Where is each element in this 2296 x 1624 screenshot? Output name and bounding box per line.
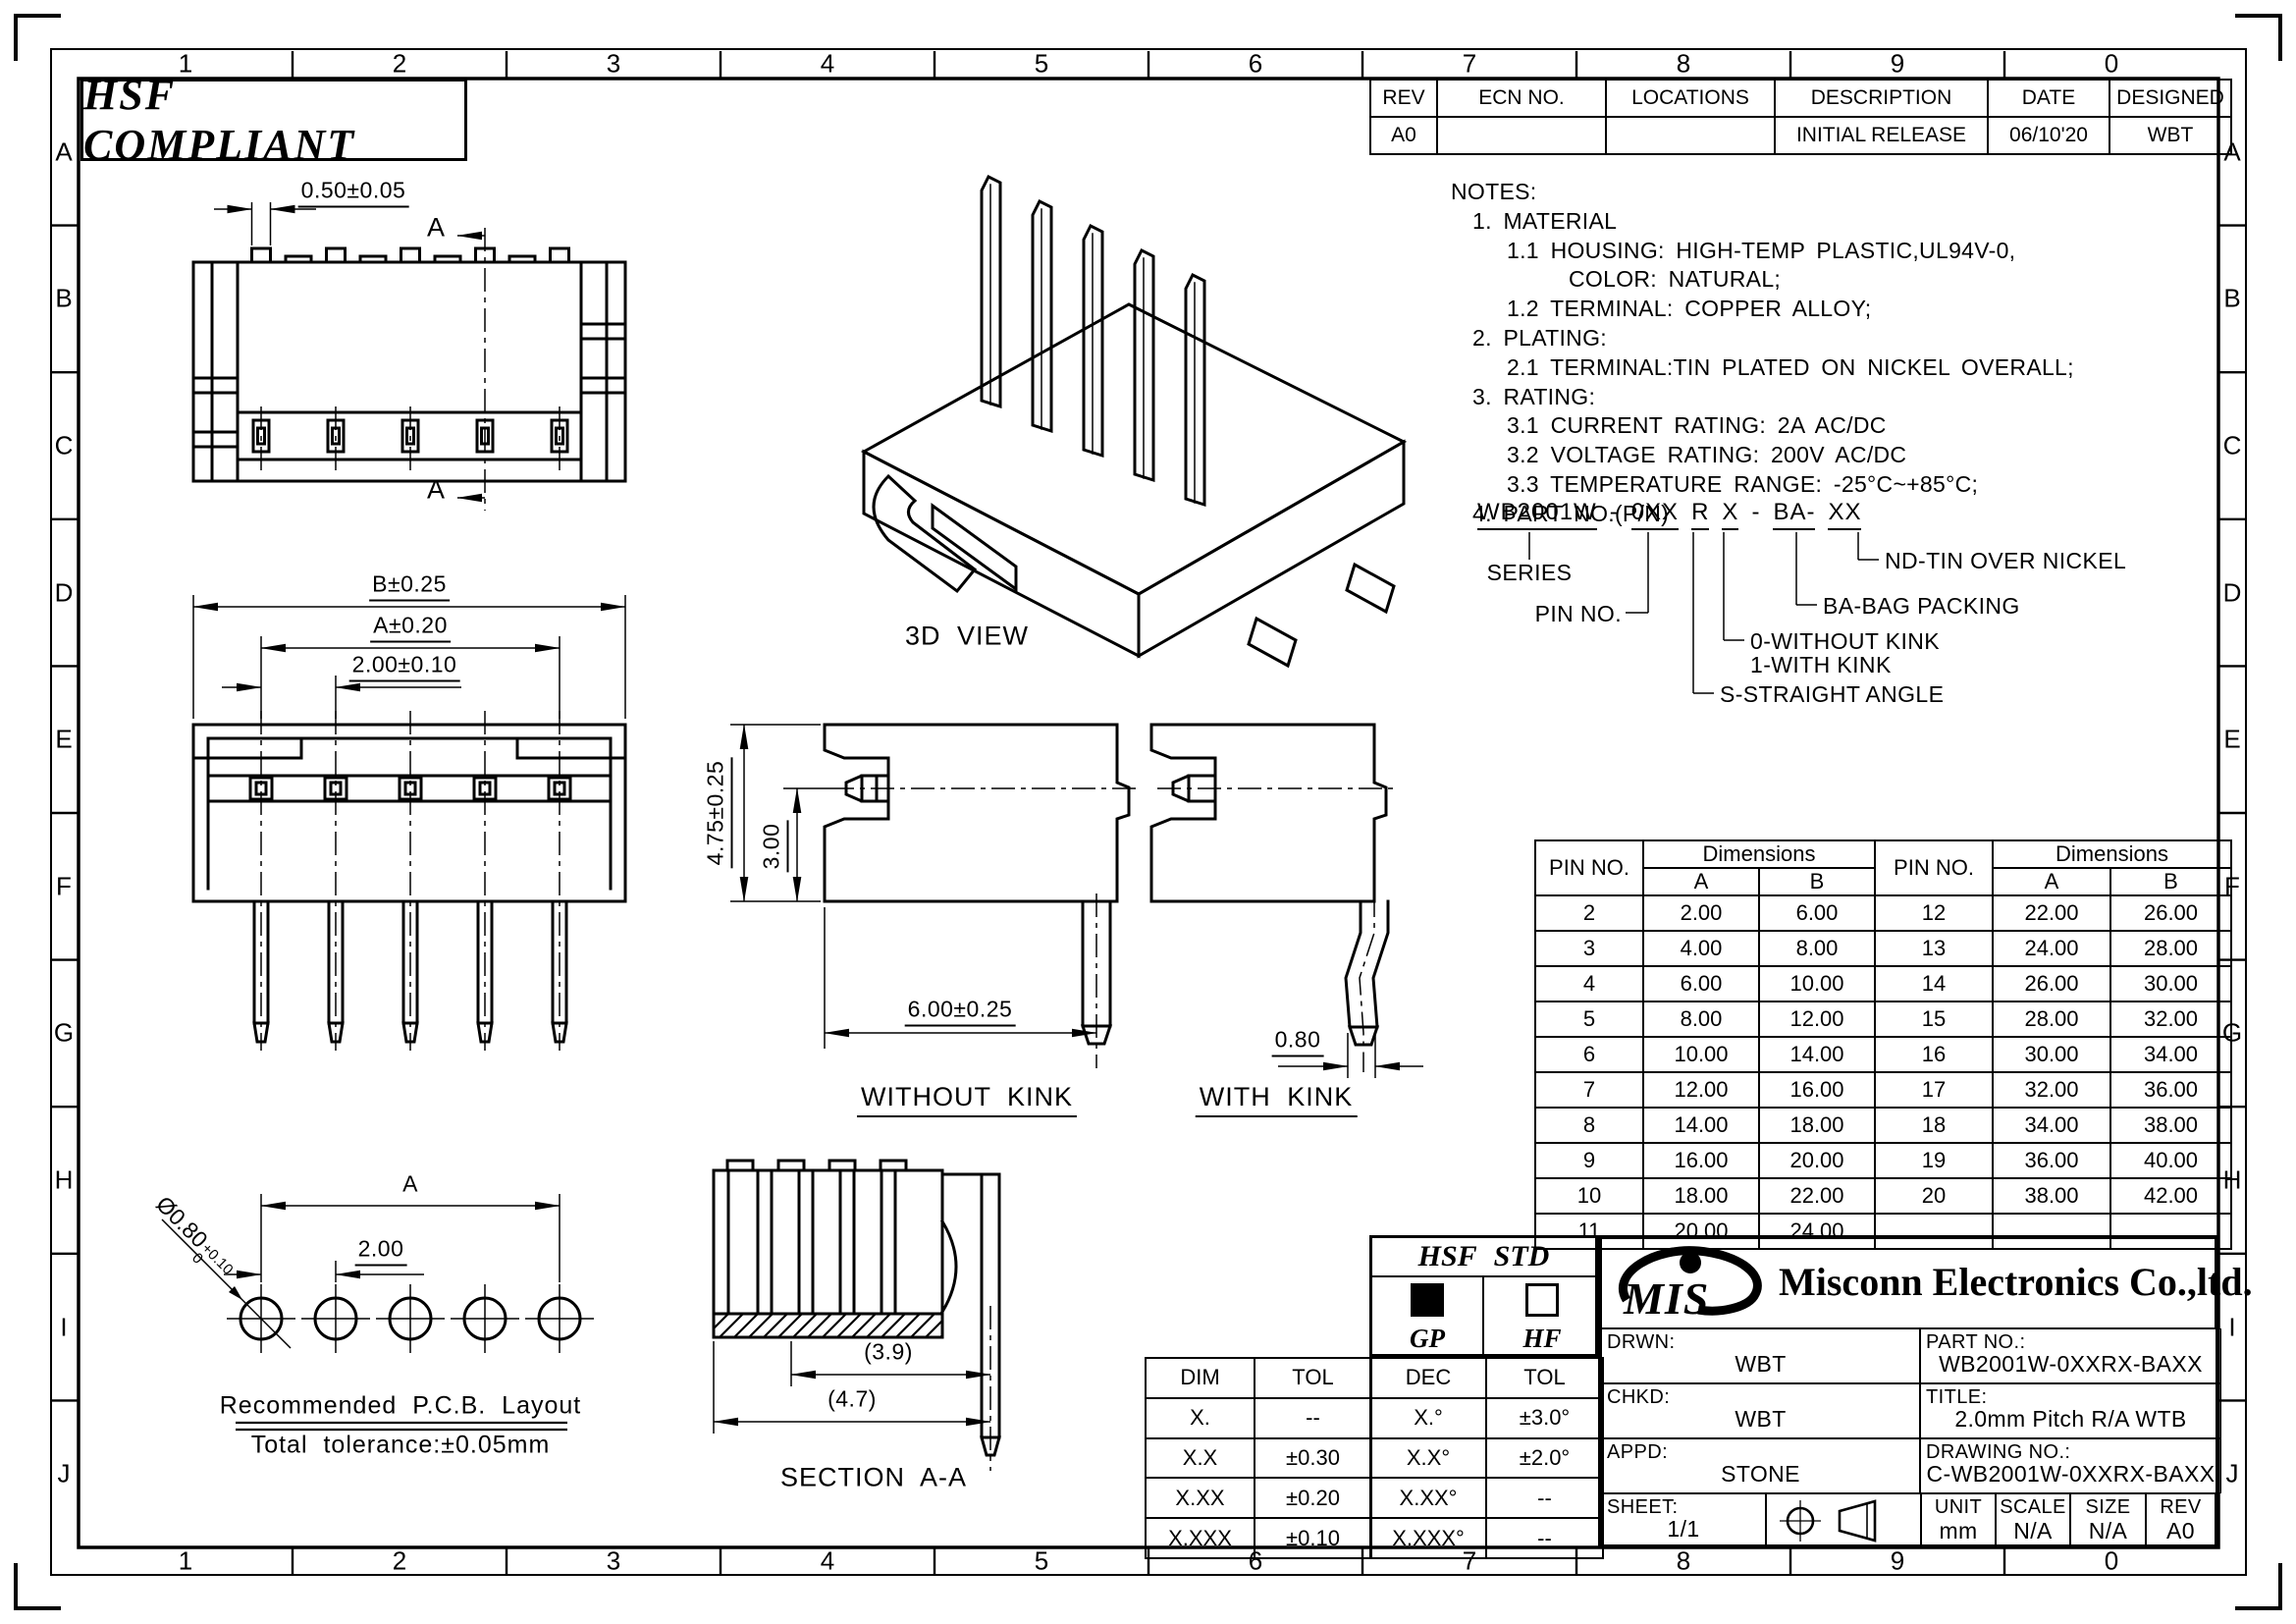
dim-tol-cell: TOL — [1255, 1358, 1371, 1398]
part-number-segment: - — [1610, 499, 1619, 526]
pin-table-cell: 13 — [1875, 931, 1993, 966]
pin-table-cell: 5 — [1535, 1001, 1643, 1037]
chkd-value: WBT — [1602, 1406, 1919, 1433]
pin-table-cell: 18.00 — [1643, 1178, 1759, 1214]
scale-value: N/A — [1997, 1518, 2069, 1544]
dim-pcb-a: A — [402, 1171, 418, 1198]
rev-value: A0 — [2147, 1518, 2215, 1544]
label-section-aa: SECTION A-A — [780, 1463, 967, 1493]
callout-series: SERIES — [1461, 560, 1598, 586]
pin-table-cell: 30.00 — [2110, 966, 2231, 1001]
dim-front-b: B±0.25 — [369, 571, 450, 602]
zone-row-label-left: E — [55, 725, 72, 755]
sheet-cell: SHEET: 1/1 — [1601, 1493, 1766, 1547]
revision-table-cell: LOCATIONS — [1606, 80, 1775, 117]
callout-pin-no: PIN NO. — [1472, 601, 1622, 627]
dim-front-a: A±0.20 — [370, 613, 451, 643]
dim-tol-cell: ±0.30 — [1255, 1438, 1371, 1479]
zone-row-label-right: J — [2226, 1459, 2239, 1489]
callout-nd-plating: ND-TIN OVER NICKEL — [1885, 548, 2126, 574]
hsf-std-block: HSF STD GP HF — [1369, 1235, 1598, 1357]
pin-table-cell: 30.00 — [1993, 1037, 2110, 1072]
pin-table-cell: 18 — [1875, 1108, 1993, 1143]
pin-table-cell: 8.00 — [1759, 931, 1875, 966]
part-number-segment: - — [1751, 499, 1760, 526]
note-line: COLOR: NATURAL; — [1451, 266, 2216, 296]
dim-tol-cell: -- — [1255, 1398, 1371, 1438]
zone-row-label-left: G — [54, 1018, 74, 1049]
pin-table-cell: 10 — [1535, 1178, 1643, 1214]
dim-tol-cell: X.XXX — [1146, 1518, 1255, 1558]
note-line: 3.1 CURRENT RATING: 2A AC/DC — [1451, 412, 2216, 442]
pin-table-cell: 4.00 — [1643, 931, 1759, 966]
gp-label: GP — [1410, 1324, 1445, 1354]
pin-table-cell: 36.00 — [2110, 1072, 2231, 1108]
revision-table-cell: DESCRIPTION — [1775, 80, 1988, 117]
dim-top-pin-width: 0.50±0.05 — [298, 178, 409, 208]
pin-table-cell: 20 — [1875, 1178, 1993, 1214]
pin-table-cell: 2 — [1535, 895, 1643, 931]
dim-wok-inner: 3.00 — [759, 821, 789, 873]
drawing-no-value: C-WB2001W-0XXRX-BAXX — [1921, 1461, 2220, 1488]
with-kink-linework — [1151, 725, 1388, 1045]
zone-column-label-top: 6 — [1249, 49, 1262, 80]
hf-cell: HF — [1486, 1277, 1598, 1358]
dim-tol-cell: X.XX — [1146, 1478, 1255, 1518]
pin-table-cell: 36.00 — [1993, 1143, 2110, 1178]
note-line: 3.2 VOLTAGE RATING: 200V AC/DC — [1451, 442, 2216, 471]
label-3d-view: 3D VIEW — [905, 622, 1029, 652]
pin-table-cell: 18.00 — [1759, 1108, 1875, 1143]
part-number-segment: R — [1691, 499, 1709, 530]
label-pcb-title: Recommended P.C.B. Layout — [220, 1392, 582, 1421]
dim-wok-width: 6.00±0.25 — [905, 997, 1016, 1027]
label-pcb-tolerance: Total tolerance:±0.05mm — [251, 1432, 551, 1460]
zone-column-label-bottom: 9 — [1891, 1546, 1904, 1577]
part-number-segment: XX — [1828, 499, 1861, 530]
zone-column-label-top: 9 — [1891, 49, 1904, 80]
pin-table-cell: 16 — [1875, 1037, 1993, 1072]
scale-cell: SCALE N/A — [1996, 1493, 2070, 1547]
dim-tol-cell: DIM — [1146, 1358, 1255, 1398]
zone-row-label-right: E — [2223, 725, 2240, 755]
pin-table-cell: 10.00 — [1759, 966, 1875, 1001]
front-view-centerlines — [261, 711, 560, 1051]
callout-with-kink: 1-WITH KINK — [1750, 652, 1892, 678]
zone-column-label-top: 5 — [1035, 49, 1048, 80]
pin-table-cell: 3 — [1535, 931, 1643, 966]
pin-table-cell: 6 — [1535, 1037, 1643, 1072]
pin-table-header: B — [1759, 868, 1875, 895]
zone-row-label-left: F — [56, 871, 72, 901]
pin-table-cell: 26.00 — [2110, 895, 2231, 931]
note-line: 1.1 HOUSING: HIGH-TEMP PLASTIC,UL94V-0, — [1451, 238, 2216, 267]
three-d-pins — [982, 177, 1204, 505]
zone-row-label-right: C — [2223, 431, 2242, 461]
dim-tol-cell: X. — [1146, 1398, 1255, 1438]
gp-cell: GP — [1372, 1277, 1484, 1358]
zone-column-label-bottom: 3 — [607, 1546, 620, 1577]
revision-table-cell: DATE — [1988, 80, 2109, 117]
pin-table-cell: 17 — [1875, 1072, 1993, 1108]
pin-table-cell: 26.00 — [1993, 966, 2110, 1001]
dim-kink-offset: 0.80 — [1272, 1027, 1324, 1057]
dim-tolerance-table: DIMTOLX.--X.X±0.30X.XX±0.20X.XXX±0.10 — [1145, 1357, 1372, 1559]
zone-column-label-top: 8 — [1677, 49, 1690, 80]
pin-table-cell: 16.00 — [1759, 1072, 1875, 1108]
section-hatching — [714, 1314, 942, 1337]
dec-tol-cell: X.XX° — [1370, 1478, 1486, 1518]
note-line: 3.3 TEMPERATURE RANGE: -25°C~+85°C; — [1451, 471, 2216, 501]
hsf-std-title: HSF STD — [1372, 1238, 1595, 1277]
unit-value: mm — [1922, 1518, 1995, 1544]
zone-column-label-bottom: 8 — [1677, 1546, 1690, 1577]
callout-straight-angle: S-STRAIGHT ANGLE — [1720, 681, 1944, 708]
pin-table-cell: 6.00 — [1759, 895, 1875, 931]
appd-cell: APPD: STONE — [1601, 1438, 1920, 1493]
dim-wok-height: 4.75±0.25 — [703, 758, 733, 869]
zone-row-label-right: D — [2223, 577, 2242, 608]
top-view-centerlines — [261, 228, 560, 511]
callout-bag-packing: BA-BAG PACKING — [1823, 593, 2020, 620]
pin-table-cell: 8.00 — [1643, 1001, 1759, 1037]
section-letter-bottom: A — [427, 475, 445, 506]
zone-column-label-bottom: 2 — [393, 1546, 406, 1577]
zone-row-label-right: I — [2228, 1312, 2235, 1342]
pin-table-cell: 14 — [1875, 966, 1993, 1001]
pin-table-header: PIN NO. — [1875, 840, 1993, 895]
revision-table-cell: DESIGNED — [2109, 80, 2231, 117]
pin-table-cell: 42.00 — [2110, 1178, 2231, 1214]
pin-table-cell: 14.00 — [1759, 1037, 1875, 1072]
hsf-compliant-stamp: HSF COMPLIANT — [80, 79, 467, 161]
projection-cell — [1766, 1493, 1921, 1547]
zone-row-label-left: I — [60, 1312, 67, 1342]
drawing-sheet: 11223344556677889900AABBCCDDEEFFGGHHIIJJ… — [0, 0, 2296, 1624]
pin-table-header: B — [2110, 868, 2231, 895]
pin-table-cell: 14.00 — [1643, 1108, 1759, 1143]
pin-table-header: Dimensions — [1643, 840, 1875, 868]
rev-label: REV — [2147, 1496, 2215, 1519]
size-value: N/A — [2071, 1518, 2145, 1544]
notes-block: NOTES:1. MATERIAL1.1 HOUSING: HIGH-TEMP … — [1451, 179, 2216, 530]
revision-table-cell: ECN NO. — [1437, 80, 1606, 117]
pin-table-cell: 24.00 — [1993, 931, 2110, 966]
title-cell: TITLE: 2.0mm Pitch R/A WTB — [1920, 1383, 2221, 1438]
pin-table-cell: 34.00 — [2110, 1037, 2231, 1072]
dec-tol-cell: -- — [1486, 1478, 1603, 1518]
dec-tol-cell: X.X° — [1370, 1438, 1486, 1479]
zone-column-label-top: 0 — [2105, 49, 2118, 80]
pin-table-cell: 10.00 — [1643, 1037, 1759, 1072]
drwn-value: WBT — [1602, 1351, 1919, 1378]
pin-table-cell: 34.00 — [1993, 1108, 2110, 1143]
pin-table-cell: 20.00 — [1759, 1143, 1875, 1178]
pin-table-cell: 22.00 — [1759, 1178, 1875, 1214]
dim-tol-cell: ±0.10 — [1255, 1518, 1371, 1558]
part-number-segment: WB2001W — [1477, 499, 1597, 530]
revision-table-cell: REV — [1370, 80, 1437, 117]
pin-table-cell: 38.00 — [1993, 1178, 2110, 1214]
pin-table-cell: 28.00 — [2110, 931, 2231, 966]
part-no-cell: PART NO.: WB2001W-0XXRX-BAXX — [1920, 1328, 2221, 1383]
dim-front-pitch: 2.00±0.10 — [349, 652, 460, 682]
pin-table-cell: 28.00 — [1993, 1001, 2110, 1037]
drwn-cell: DRWN: WBT — [1601, 1328, 1920, 1383]
dec-tol-cell: -- — [1486, 1518, 1603, 1558]
dim-pcb-pitch: 2.00 — [355, 1236, 407, 1267]
note-line: 2.1 TERMINAL:TIN PLATED ON NICKEL OVERAL… — [1451, 354, 2216, 384]
scale-label: SCALE — [1997, 1496, 2069, 1519]
note-line: 1.2 TERMINAL: COPPER ALLOY; — [1451, 296, 2216, 325]
pin-table-cell: 12.00 — [1759, 1001, 1875, 1037]
chkd-cell: CHKD: WBT — [1601, 1383, 1920, 1438]
pin-table-header: A — [1643, 868, 1759, 895]
top-view-linework — [193, 248, 625, 481]
label-without-kink: WITHOUT KINK — [857, 1082, 1077, 1117]
label-with-kink: WITH KINK — [1196, 1082, 1358, 1117]
zone-row-label-left: H — [55, 1165, 74, 1196]
zone-column-label-top: 3 — [607, 49, 620, 80]
pin-table-header: A — [1993, 868, 2110, 895]
revision-table-cell: WBT — [2109, 117, 2231, 154]
zone-row-label-left: C — [55, 431, 74, 461]
third-angle-projection-icon — [1771, 1495, 1918, 1546]
zone-row-label-left: A — [55, 136, 72, 167]
revision-table-cell: INITIAL RELEASE — [1775, 117, 1988, 154]
sheet-value: 1/1 — [1602, 1516, 1765, 1543]
zone-column-label-top: 4 — [821, 49, 834, 80]
size-label: SIZE — [2071, 1496, 2145, 1519]
pin-table-cell: 12 — [1875, 895, 1993, 931]
dec-tol-cell: X.° — [1370, 1398, 1486, 1438]
appd-value: STONE — [1602, 1461, 1919, 1488]
zone-column-label-bottom: 5 — [1035, 1546, 1048, 1577]
pin-table-cell: 9 — [1535, 1143, 1643, 1178]
hf-label: HF — [1522, 1324, 1561, 1354]
dim-section-inner: (3.9) — [864, 1339, 913, 1366]
pin-table-cell: 7 — [1535, 1072, 1643, 1108]
note-line: 3. RATING: — [1451, 384, 2216, 413]
top-view-dimensions — [214, 202, 485, 498]
dim-tol-cell: X.X — [1146, 1438, 1255, 1479]
pin-table-header: Dimensions — [1993, 840, 2231, 868]
dec-tol-cell: X.XXX° — [1370, 1518, 1486, 1558]
title-block-logo-row: MIS Misconn Electronics Co.,ltd. — [1601, 1238, 2216, 1328]
company-name: Misconn Electronics Co.,ltd. — [1779, 1259, 2211, 1305]
dec-tol-cell: TOL — [1486, 1358, 1603, 1398]
rev-cell: REV A0 — [2146, 1493, 2216, 1547]
dim-section-outer: (4.7) — [828, 1386, 877, 1413]
pin-table-cell: 2.00 — [1643, 895, 1759, 931]
front-view-linework — [193, 725, 625, 1042]
dec-tol-cell: ±2.0° — [1486, 1438, 1603, 1479]
pin-table-cell: 12.00 — [1643, 1072, 1759, 1108]
pin-dimension-table: PIN NO.DimensionsPIN NO.DimensionsABAB22… — [1534, 839, 2232, 1250]
dec-tolerance-table: DECTOLX.°±3.0°X.X°±2.0°X.XX°--X.XXX°-- — [1369, 1357, 1604, 1559]
revision-table-cell: 06/10'20 — [1988, 117, 2109, 154]
part-number-segment: X — [1722, 499, 1738, 530]
revision-table-cell: A0 — [1370, 117, 1437, 154]
note-line: NOTES: — [1451, 179, 2216, 208]
zone-row-label-left: B — [55, 284, 72, 314]
zone-row-label-left: J — [58, 1459, 71, 1489]
title-block: MIS Misconn Electronics Co.,ltd. DRWN: W… — [1598, 1235, 2218, 1547]
hf-hollow-square-icon — [1525, 1283, 1559, 1317]
pin-table-cell: 8 — [1535, 1108, 1643, 1143]
revision-table: REVECN NO.LOCATIONSDESCRIPTIONDATEDESIGN… — [1369, 79, 2232, 155]
note-line: 2. PLATING: — [1451, 325, 2216, 354]
part-number-segment: BA- — [1773, 499, 1815, 530]
pin-table-cell: 22.00 — [1993, 895, 2110, 931]
zone-column-label-top: 7 — [1463, 49, 1476, 80]
pin-table-cell: 19 — [1875, 1143, 1993, 1178]
pin-table-cell: 38.00 — [2110, 1108, 2231, 1143]
zone-column-label-bottom: 4 — [821, 1546, 834, 1577]
pin-table-cell: 32.00 — [2110, 1001, 2231, 1037]
dec-tol-cell: ±3.0° — [1486, 1398, 1603, 1438]
size-cell: SIZE N/A — [2070, 1493, 2146, 1547]
dim-tol-cell: ±0.20 — [1255, 1478, 1371, 1518]
pin-table-cell: 6.00 — [1643, 966, 1759, 1001]
unit-cell: UNIT mm — [1921, 1493, 1996, 1547]
hsf-compliant-text: HSF COMPLIANT — [83, 70, 464, 170]
note-line: 1. MATERIAL — [1451, 208, 2216, 238]
pin-table-cell: 15 — [1875, 1001, 1993, 1037]
part-number-code: WB2001W-0XXRX-BA-XX — [1477, 499, 1874, 530]
drawing-no-cell: DRAWING NO.: C-WB2001W-0XXRX-BAXX — [1920, 1438, 2221, 1493]
section-letter-top: A — [427, 213, 445, 244]
revision-table-cell — [1437, 117, 1606, 154]
revision-table-cell — [1606, 117, 1775, 154]
title-value: 2.0mm Pitch R/A WTB — [1921, 1406, 2220, 1433]
zone-row-label-right: B — [2223, 284, 2240, 314]
pin-table-cell: 40.00 — [2110, 1143, 2231, 1178]
pin-table-cell: 4 — [1535, 966, 1643, 1001]
zone-column-label-bottom: 1 — [179, 1546, 192, 1577]
unit-label: UNIT — [1922, 1496, 1995, 1519]
callout-without-kink: 0-WITHOUT KINK — [1750, 628, 1940, 655]
part-number-segment: 0XX — [1631, 499, 1679, 530]
pin-table-header: PIN NO. — [1535, 840, 1643, 895]
dec-tol-cell: DEC — [1370, 1358, 1486, 1398]
mis-logo-text: MIS — [1624, 1272, 1709, 1325]
gp-filled-square-icon — [1411, 1283, 1444, 1317]
pin-table-cell: 32.00 — [1993, 1072, 2110, 1108]
pin-table-cell: 16.00 — [1643, 1143, 1759, 1178]
part-no-value: WB2001W-0XXRX-BAXX — [1921, 1351, 2220, 1378]
zone-column-label-bottom: 0 — [2105, 1546, 2118, 1577]
zone-row-label-left: D — [55, 577, 74, 608]
